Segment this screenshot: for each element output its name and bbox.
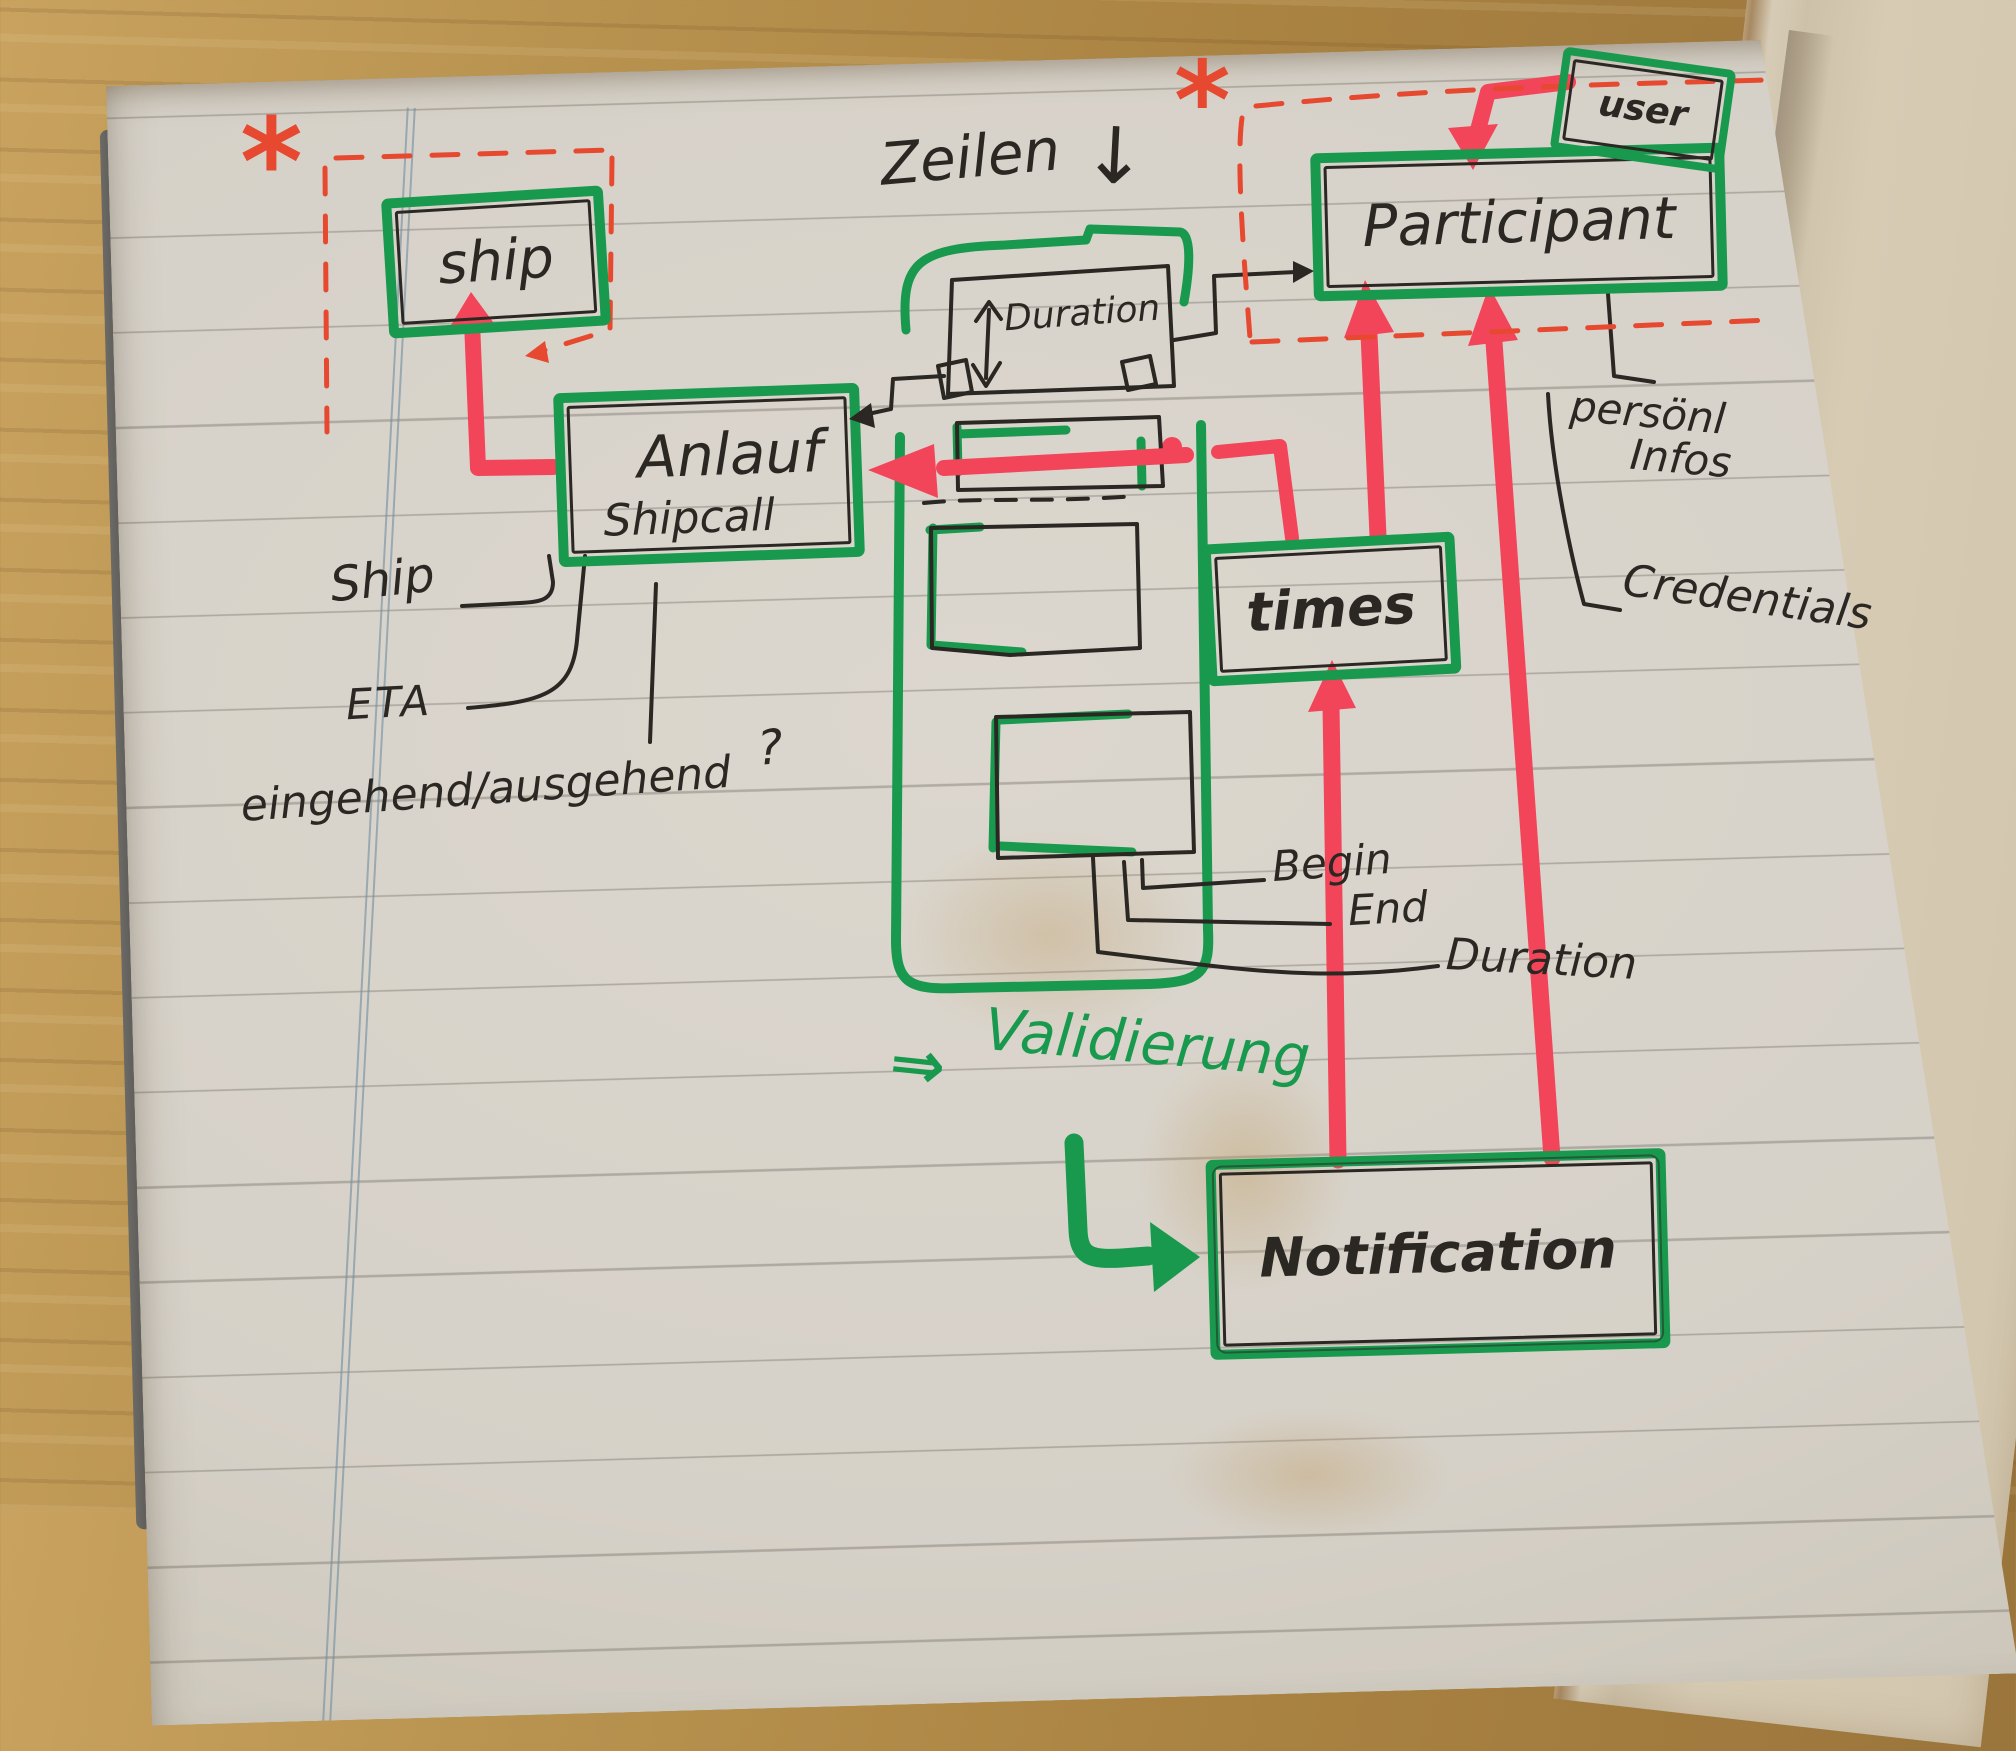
red-left-arrow [944,455,1186,468]
green-elbow-arrowhead [1150,1222,1200,1292]
duration-to-anlauf-connector [868,376,944,414]
green-elbow-arrow [1074,1143,1148,1258]
diagram-strokes-over [0,0,2016,1512]
red-left-arrowhead [868,444,938,498]
hand-drawn-diagram: ship Anlauf Shipcall Participant user ti… [0,0,2016,1512]
over-strokes [849,376,1200,1292]
duration-anlauf-arrowhead [849,403,875,428]
